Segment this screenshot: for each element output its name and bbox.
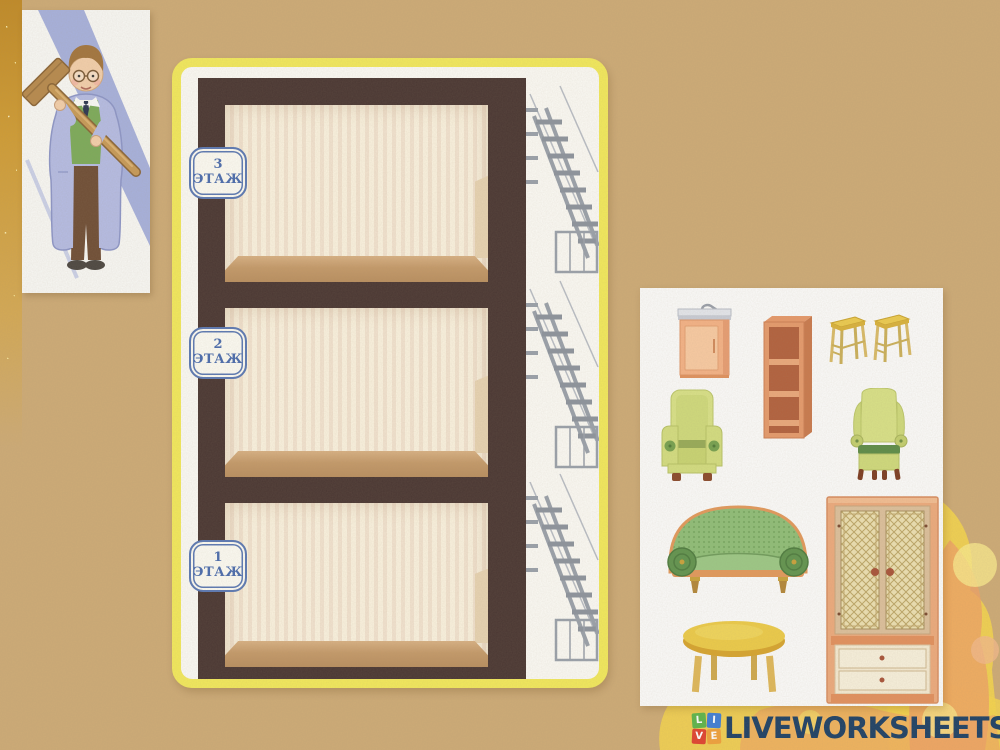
floor-1-room[interactable] <box>225 503 488 667</box>
floor-badge-3: 3 ЭТАЖ <box>189 147 247 199</box>
furniture-armchair[interactable] <box>660 388 724 486</box>
worksheet-page: 3 ЭТАЖ 2 ЭТАЖ 1 ЭТАЖ <box>0 0 1000 750</box>
liveworksheets-logo[interactable]: L I V E LIVEWORKSHEETS <box>692 711 1000 745</box>
room-side-wall <box>475 376 488 453</box>
floor-number: 2 <box>213 338 222 353</box>
furniture-panel <box>640 288 943 706</box>
wardrobe-icon <box>826 496 939 706</box>
wingback-armchair-icon <box>848 388 910 482</box>
room-side-wall <box>475 176 488 258</box>
furniture-round-table[interactable] <box>681 616 787 700</box>
furniture-sink-cabinet[interactable] <box>676 301 734 385</box>
logo-tile-i: I <box>707 712 722 728</box>
stools-icon <box>828 314 912 366</box>
furniture-sofa[interactable] <box>662 500 814 600</box>
floor-word: ЭТАЖ <box>193 353 243 368</box>
room-floor <box>225 641 488 667</box>
furniture-wardrobe[interactable] <box>826 496 939 710</box>
logo-wordmark: LIVEWORKSHEETS <box>724 711 1000 745</box>
building-divider-1 <box>198 282 526 308</box>
character-card <box>22 10 150 293</box>
room-side-wall <box>475 569 488 643</box>
building-top-beam <box>198 78 526 105</box>
building-divider-2 <box>198 477 526 503</box>
logo-tiles-icon: L I V E <box>692 713 721 744</box>
armchair-icon <box>660 388 724 482</box>
furniture-open-shelf[interactable] <box>762 316 814 446</box>
floor-badge-2: 2 ЭТАЖ <box>189 327 247 379</box>
floor-2-room[interactable] <box>225 308 488 477</box>
floor-word: ЭТАЖ <box>193 173 243 188</box>
gold-glitter-strip <box>0 0 22 448</box>
sink-cabinet-icon <box>676 301 734 381</box>
floor-3-room[interactable] <box>225 105 488 282</box>
building-bottom-beam <box>198 667 526 679</box>
open-shelf-icon <box>762 316 814 442</box>
floor-number: 3 <box>213 158 222 173</box>
furniture-wingback-armchair[interactable] <box>848 388 910 486</box>
room-floor <box>225 451 488 477</box>
round-table-icon <box>681 616 787 696</box>
logo-tile-l: L <box>691 712 706 728</box>
logo-tile-v: V <box>692 728 707 744</box>
floor-badge-1: 1 ЭТАЖ <box>189 540 247 592</box>
building-right-beam <box>488 78 526 679</box>
furniture-stools[interactable] <box>828 314 912 370</box>
floor-number: 1 <box>213 551 222 566</box>
fire-escape-icon <box>526 78 599 679</box>
builder-with-mallet-illustration <box>22 10 150 293</box>
logo-tile-e: E <box>707 728 722 744</box>
room-floor <box>225 256 488 282</box>
building-card: 3 ЭТАЖ 2 ЭТАЖ 1 ЭТАЖ <box>172 58 608 688</box>
floor-word: ЭТАЖ <box>193 566 243 581</box>
sofa-icon <box>662 500 814 596</box>
